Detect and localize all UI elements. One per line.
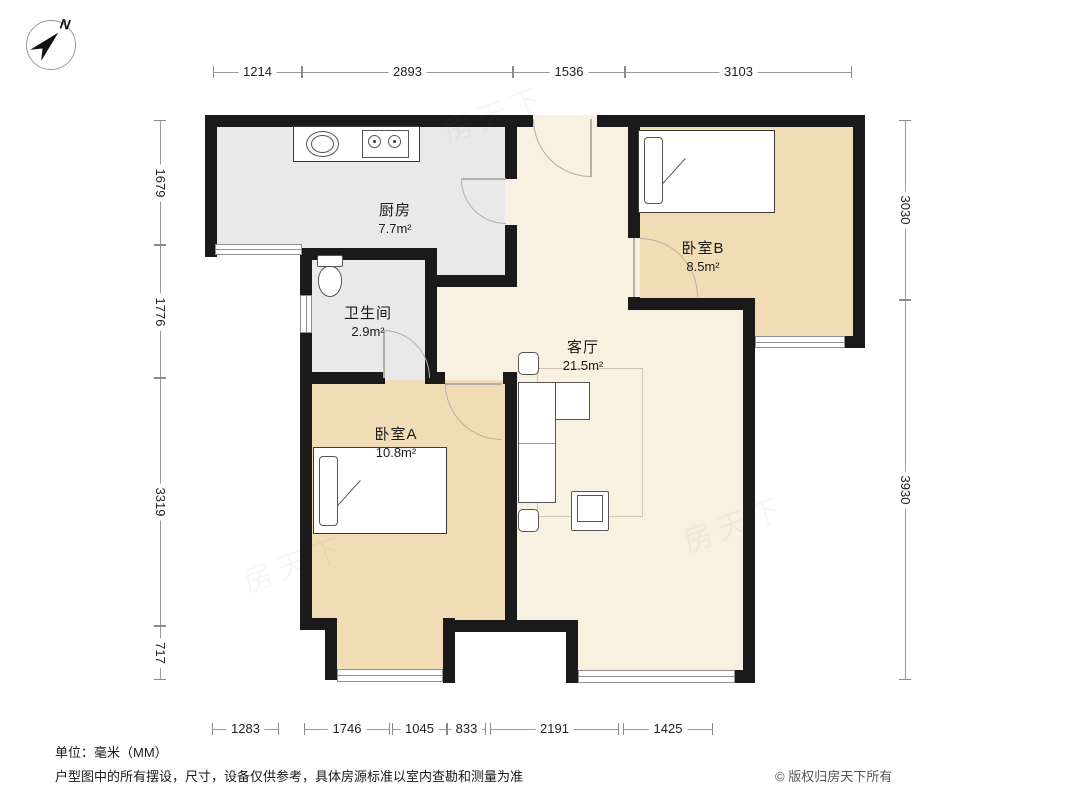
entry-door-leaf xyxy=(590,119,592,177)
dimension-value: 2191 xyxy=(535,722,574,736)
dimension-value: 2893 xyxy=(388,65,427,79)
side-table-bottom xyxy=(518,509,539,532)
dimension-value: 3319 xyxy=(153,484,167,521)
stove-burner-right-dot xyxy=(393,140,396,143)
wall-bathroom-bottom xyxy=(300,372,385,384)
dimension-value: 717 xyxy=(153,638,167,668)
floorplan-canvas: N 12142893153631031283174610458332191142… xyxy=(0,0,1066,800)
dimension-value: 1776 xyxy=(153,293,167,330)
armchair-seat xyxy=(577,495,603,522)
kitchen-floor-lower xyxy=(437,248,505,275)
wall-left-upper xyxy=(205,115,217,257)
dimension-value: 3103 xyxy=(719,65,758,79)
dimension-value: 1045 xyxy=(400,722,439,736)
wall-right-upper xyxy=(853,115,865,348)
dimension-top-3103: 3103 xyxy=(625,66,852,78)
stove-burner-left-dot xyxy=(373,140,376,143)
dimension-value: 3930 xyxy=(898,472,912,509)
bedroomA-floor-bay xyxy=(333,622,443,672)
kitchen-window xyxy=(215,244,302,255)
bedroomA-door-leaf xyxy=(445,383,502,385)
dimension-left-3319: 3319 xyxy=(154,378,166,626)
wall-bedroomB-bottom xyxy=(628,298,748,310)
dimension-bottom-1425: 1425 xyxy=(623,723,713,735)
side-table-top xyxy=(518,352,539,375)
wall-bedroomB-window-corner xyxy=(845,336,865,348)
dimension-value: 1679 xyxy=(153,164,167,201)
toilet-bowl xyxy=(318,266,342,297)
living-room-floor-bay xyxy=(578,622,743,675)
bedroomA-pillow xyxy=(319,456,338,526)
room-label-bathroom: 卫生间 2.9m² xyxy=(344,302,392,339)
wall-hall-bedroomB-b xyxy=(628,297,640,310)
room-label-bedroomA: 卧室A 10.8m² xyxy=(374,423,417,460)
living-room-window xyxy=(578,670,735,683)
wall-living-bottom-h xyxy=(443,620,578,632)
bedroomB-window xyxy=(755,336,845,348)
bedroomA-bay-window xyxy=(337,669,443,682)
dimension-top-1214: 1214 xyxy=(213,66,302,78)
compass: N xyxy=(24,16,82,74)
dimension-top-1536: 1536 xyxy=(513,66,625,78)
dimension-left-717: 717 xyxy=(154,626,166,680)
dimension-value: 1746 xyxy=(328,722,367,736)
dimension-right-3930: 3930 xyxy=(899,300,911,680)
dimension-left-1776: 1776 xyxy=(154,245,166,378)
dimension-value: 1425 xyxy=(649,722,688,736)
unit-note: 单位：毫米（MM） xyxy=(55,742,168,761)
dimension-top-2893: 2893 xyxy=(302,66,513,78)
kitchen-sink-inner xyxy=(311,135,334,153)
dimension-value: 1536 xyxy=(550,65,589,79)
wall-right-lower xyxy=(743,340,755,683)
dimension-right-3030: 3030 xyxy=(899,120,911,300)
dimension-bottom-1283: 1283 xyxy=(212,723,279,735)
room-label-bedroomB: 卧室B 8.5m² xyxy=(681,237,724,274)
bedroomB-door-leaf xyxy=(633,238,635,297)
dimension-left-1679: 1679 xyxy=(154,120,166,245)
room-label-living: 客厅 21.5m² xyxy=(563,336,603,373)
dimension-value: 1283 xyxy=(226,722,265,736)
kitchen-door-threshold xyxy=(505,179,517,225)
dimension-bottom-2191: 2191 xyxy=(490,723,619,735)
dimension-value: 1214 xyxy=(238,65,277,79)
sofa-cushion-line xyxy=(519,443,555,444)
dimension-value: 833 xyxy=(451,722,483,736)
kitchen-door-leaf xyxy=(461,178,506,180)
bathroom-window xyxy=(300,295,312,333)
wall-kitchen-hall-a xyxy=(505,127,517,179)
dimension-bottom-1045: 1045 xyxy=(392,723,447,735)
dimension-bottom-833: 833 xyxy=(447,723,486,735)
dimension-bottom-1746: 1746 xyxy=(304,723,390,735)
dimension-value: 3030 xyxy=(898,192,912,229)
wall-bay-left-v xyxy=(325,618,337,680)
wall-living-bottom-v xyxy=(566,620,578,683)
wall-bedroomA-right xyxy=(505,372,517,624)
room-label-kitchen: 厨房 7.7m² xyxy=(378,199,411,236)
disclaimer: 户型图中的所有摆设，尺寸，设备仅供参考，具体房源标准以室内查勘和测量为准 xyxy=(55,766,523,785)
bedroomB-pillow xyxy=(644,137,663,204)
wall-kitchen-bottom xyxy=(437,275,517,287)
copyright: © 版权归房天下所有 xyxy=(775,766,892,785)
wall-bedroomB-step xyxy=(743,298,755,346)
